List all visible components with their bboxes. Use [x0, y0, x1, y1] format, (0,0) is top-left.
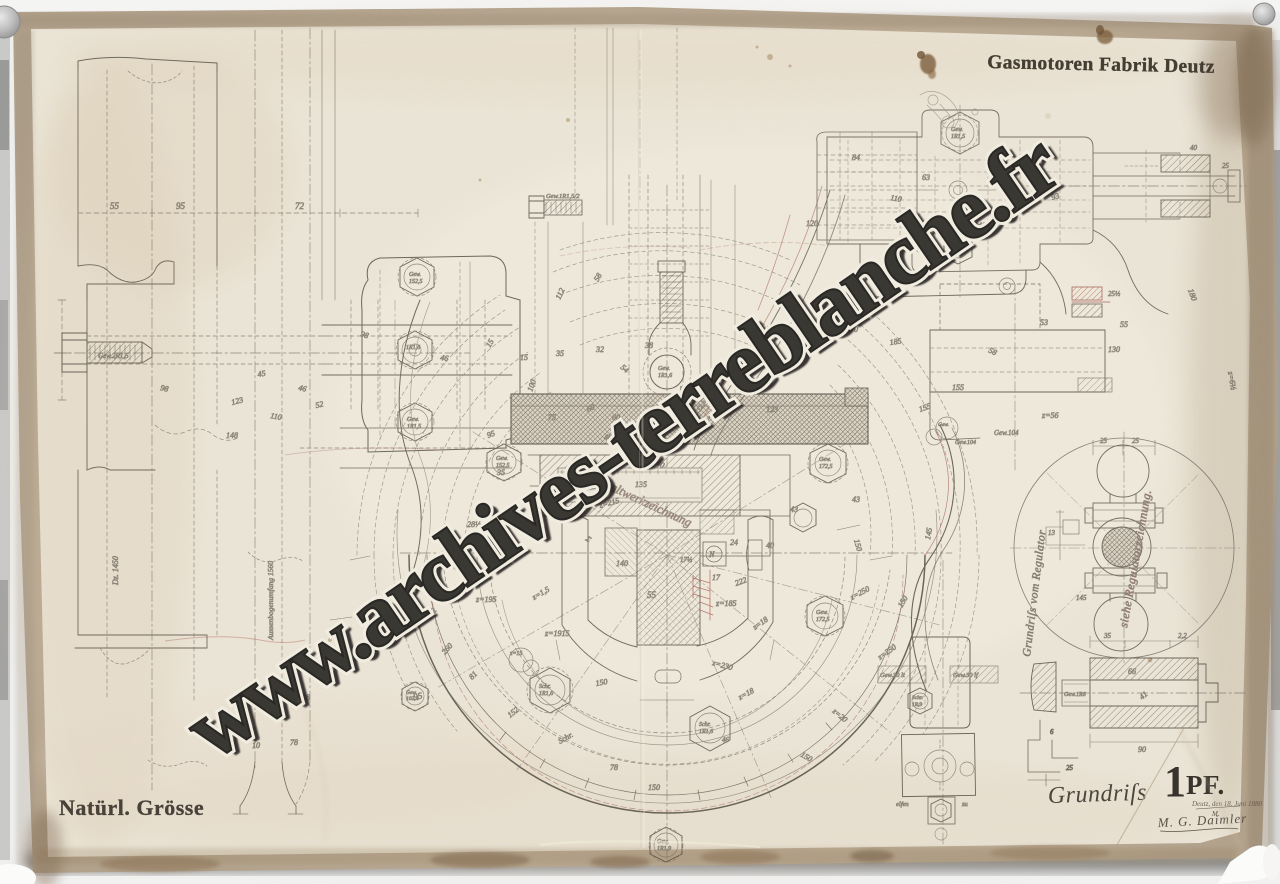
svg-text:13: 13	[1048, 529, 1056, 537]
svg-text:55: 55	[1120, 320, 1128, 329]
svg-text:Gew.: Gew.	[816, 610, 828, 616]
svg-text:43: 43	[852, 495, 860, 504]
svg-text:Gew.30 lt: Gew.30 lt	[880, 672, 905, 679]
svg-text:25: 25	[1132, 437, 1140, 445]
svg-text:Gew.: Gew.	[407, 417, 419, 423]
svg-text:17: 17	[712, 573, 721, 582]
svg-text:Gew.: Gew.	[819, 457, 831, 463]
svg-text:z=15: z=15	[509, 651, 522, 657]
svg-text:25: 25	[1100, 437, 1108, 445]
svg-text:150: 150	[648, 783, 660, 792]
svg-text:25½: 25½	[1108, 290, 1121, 298]
svg-text:46: 46	[440, 353, 449, 363]
svg-text:152,5: 152,5	[409, 279, 423, 285]
svg-text:z=185: z=185	[715, 599, 737, 608]
svg-text:1: 1	[1164, 757, 1186, 806]
svg-text:Schr.: Schr.	[912, 695, 923, 701]
svg-text:Schr.: Schr.	[699, 722, 711, 728]
svg-text:1R1,5: 1R1,5	[407, 424, 421, 430]
svg-text:2,2: 2,2	[1178, 632, 1187, 640]
svg-text:45: 45	[257, 369, 266, 379]
svg-text:Dz. 1450: Dz. 1450	[111, 556, 120, 586]
svg-text:32: 32	[595, 345, 604, 354]
svg-text:72: 72	[295, 201, 305, 211]
svg-text:Gew.2R1,5: Gew.2R1,5	[98, 352, 129, 360]
svg-text:6: 6	[1050, 728, 1054, 736]
svg-text:25: 25	[1222, 162, 1230, 170]
svg-text:24: 24	[730, 538, 738, 547]
svg-text:75: 75	[548, 413, 556, 422]
svg-text:35: 35	[555, 349, 564, 358]
svg-text:N: N	[708, 550, 715, 559]
svg-text:Gew.: Gew.	[496, 456, 508, 462]
svg-text:1R1,6: 1R1,6	[539, 691, 553, 697]
svg-text:Gew.: Gew.	[951, 127, 963, 133]
svg-text:25: 25	[1066, 764, 1074, 772]
svg-text:15: 15	[520, 353, 528, 362]
svg-text:Gew.30 lf: Gew.30 lf	[953, 672, 979, 679]
svg-text:66: 66	[1128, 667, 1136, 676]
svg-text:43: 43	[790, 505, 798, 514]
svg-text:40: 40	[766, 541, 774, 550]
svg-text:130: 130	[1108, 345, 1120, 354]
svg-text:1R1,9: 1R1,9	[657, 846, 671, 852]
svg-text:1R1,6: 1R1,6	[406, 345, 420, 351]
svg-text:Gew.: Gew.	[409, 272, 421, 278]
svg-text:Grundriſs: Grundriſs	[1047, 780, 1147, 809]
svg-text:46: 46	[722, 736, 730, 744]
svg-text:95: 95	[176, 201, 186, 211]
svg-text:90: 90	[1138, 745, 1146, 754]
svg-text:elfen: elfen	[896, 801, 909, 808]
svg-text:17½: 17½	[680, 556, 693, 564]
svg-text:84: 84	[852, 153, 860, 162]
svg-text:185: 185	[889, 336, 902, 347]
svg-text:78: 78	[610, 763, 618, 772]
svg-text:35: 35	[1103, 632, 1112, 640]
svg-text:40: 40	[1190, 144, 1198, 152]
svg-text:zu: zu	[961, 801, 969, 808]
svg-text:1R1,6: 1R1,6	[699, 729, 713, 735]
svg-text:1R,9: 1R,9	[912, 702, 922, 708]
svg-text:172,5: 172,5	[819, 464, 833, 470]
svg-text:z=56: z=56	[1041, 411, 1059, 420]
svg-text:145: 145	[1076, 594, 1087, 602]
svg-text:Natürl. Grösse: Natürl. Grösse	[59, 795, 204, 820]
svg-text:Gew.1R1,5/2: Gew.1R1,5/2	[546, 193, 580, 200]
svg-text:140: 140	[616, 559, 628, 568]
svg-text:155: 155	[952, 383, 964, 392]
svg-text:172,5: 172,5	[816, 617, 830, 623]
svg-text:53: 53	[1040, 318, 1048, 327]
svg-text:Gew.104: Gew.104	[994, 429, 1019, 437]
svg-text:55: 55	[647, 590, 657, 600]
svg-text:120: 120	[806, 219, 818, 228]
svg-text:148: 148	[226, 431, 238, 440]
svg-text:Gew.1R6: Gew.1R6	[1064, 692, 1086, 698]
svg-text:z=1915: z=1915	[544, 629, 570, 638]
svg-text:1R1,5: 1R1,5	[951, 134, 965, 140]
svg-text:55: 55	[110, 201, 120, 211]
svg-text:38: 38	[644, 341, 653, 350]
svg-text:Schr.: Schr.	[539, 684, 551, 690]
